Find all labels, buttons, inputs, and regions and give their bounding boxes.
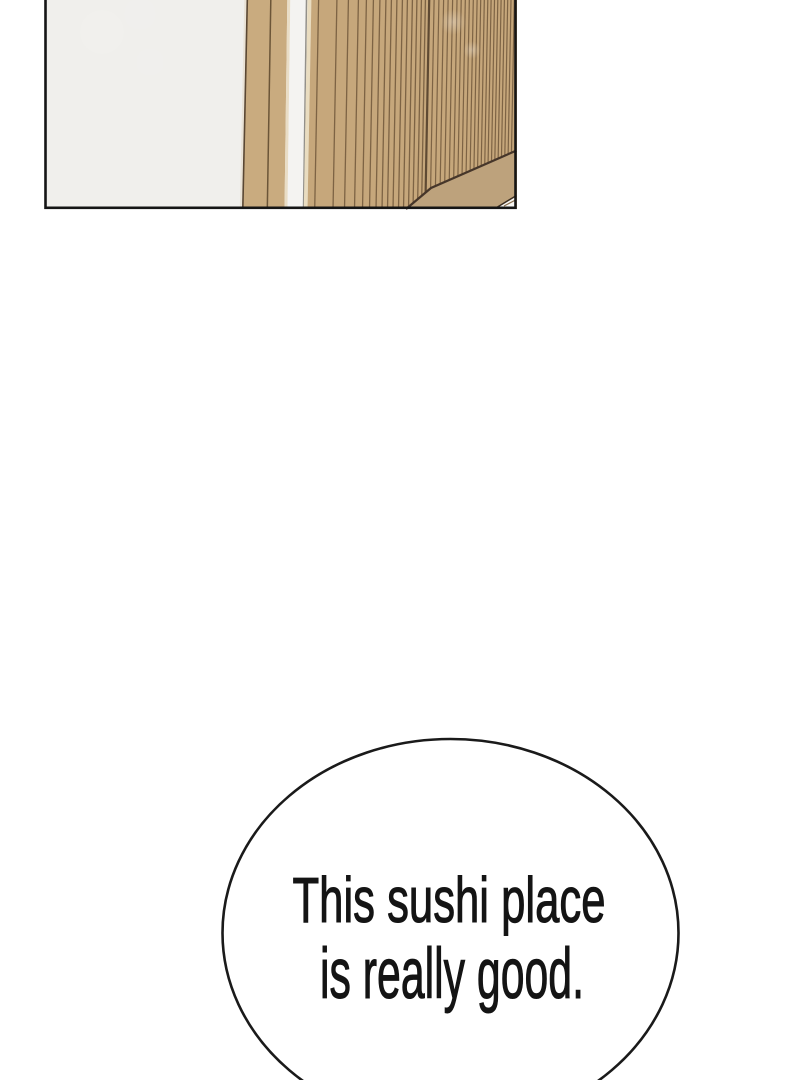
svg-text:This sushi place: This sushi place: [293, 864, 606, 936]
svg-text:is really good.: is really good.: [320, 935, 584, 1014]
